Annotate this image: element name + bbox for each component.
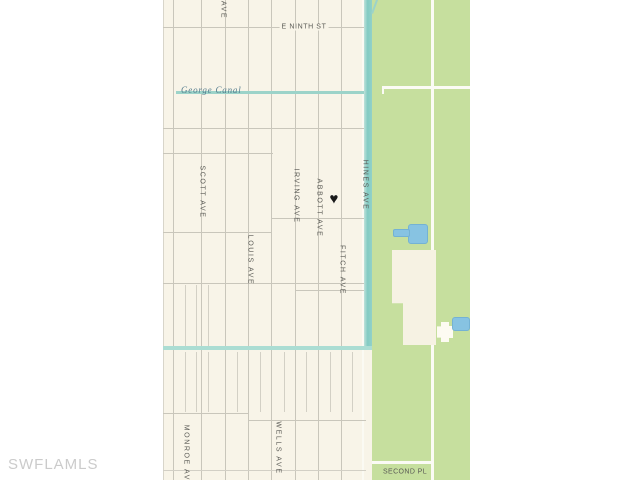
mls-watermark: SWFLAMLS (8, 456, 99, 473)
street-line (271, 0, 272, 480)
lot-line (185, 352, 186, 412)
street-line (163, 413, 248, 414)
street-line (163, 128, 366, 129)
lot-line (237, 352, 238, 412)
street-line (173, 0, 174, 480)
listing-map-image[interactable]: AVE E NINTH ST SCOTT AVE IRVING AVE ABBO… (0, 0, 640, 480)
preserve-road-spur (382, 86, 384, 94)
street-line (318, 0, 319, 480)
lower-canal-line (163, 346, 372, 350)
street-label-fitch-ave: FITCH AVE (339, 245, 346, 295)
street-label-e-ninth-st: E NINTH ST (280, 24, 329, 31)
street-line (163, 232, 271, 233)
street-label-scott-ave: SCOTT AVE (199, 165, 206, 218)
lot-line (330, 352, 331, 412)
george-canal-label: George Canal (181, 85, 242, 95)
lot-line (208, 352, 209, 412)
street-line (248, 420, 366, 421)
street-line (201, 0, 202, 480)
lot-line (260, 352, 261, 412)
street-line (163, 470, 366, 471)
map-area: AVE E NINTH ST SCOTT AVE IRVING AVE ABBO… (163, 0, 470, 480)
street-line (163, 153, 273, 154)
lot-line (185, 285, 186, 346)
second-pl-road (372, 461, 434, 464)
street-label-partial-ave: AVE (220, 1, 227, 19)
pond-arm (393, 229, 410, 237)
street-label-irving-ave: IRVING AVE (293, 168, 300, 223)
street-line (163, 27, 366, 28)
lot-line (196, 352, 197, 412)
lot-line (284, 352, 285, 412)
street-line (295, 0, 296, 480)
lot-line (196, 285, 197, 346)
map-edge-line (163, 0, 164, 480)
street-line (295, 290, 366, 291)
street-line (163, 283, 366, 284)
preserve-road-horizontal (382, 86, 470, 89)
pond (408, 224, 428, 244)
preserve-road-vertical (431, 0, 434, 480)
street-label-abbott-ave: ABBOTT AVE (316, 179, 323, 238)
street-label-monroe-ave: MONROE AVE (183, 425, 190, 480)
lot-line (352, 352, 353, 412)
street-line (341, 0, 342, 480)
street-label-hines-ave: HINES AVE (362, 160, 369, 211)
street-label-wells-ave: WELLS AVE (275, 421, 282, 474)
lot-line (306, 352, 307, 412)
property-heart-marker: ♥ (330, 191, 339, 208)
small-pond (452, 317, 470, 331)
street-line (225, 0, 226, 480)
lot-line (208, 285, 209, 346)
street-label-louis-ave: LOUIS AVE (247, 235, 254, 285)
street-label-second-pl: SECOND PL (383, 469, 427, 476)
